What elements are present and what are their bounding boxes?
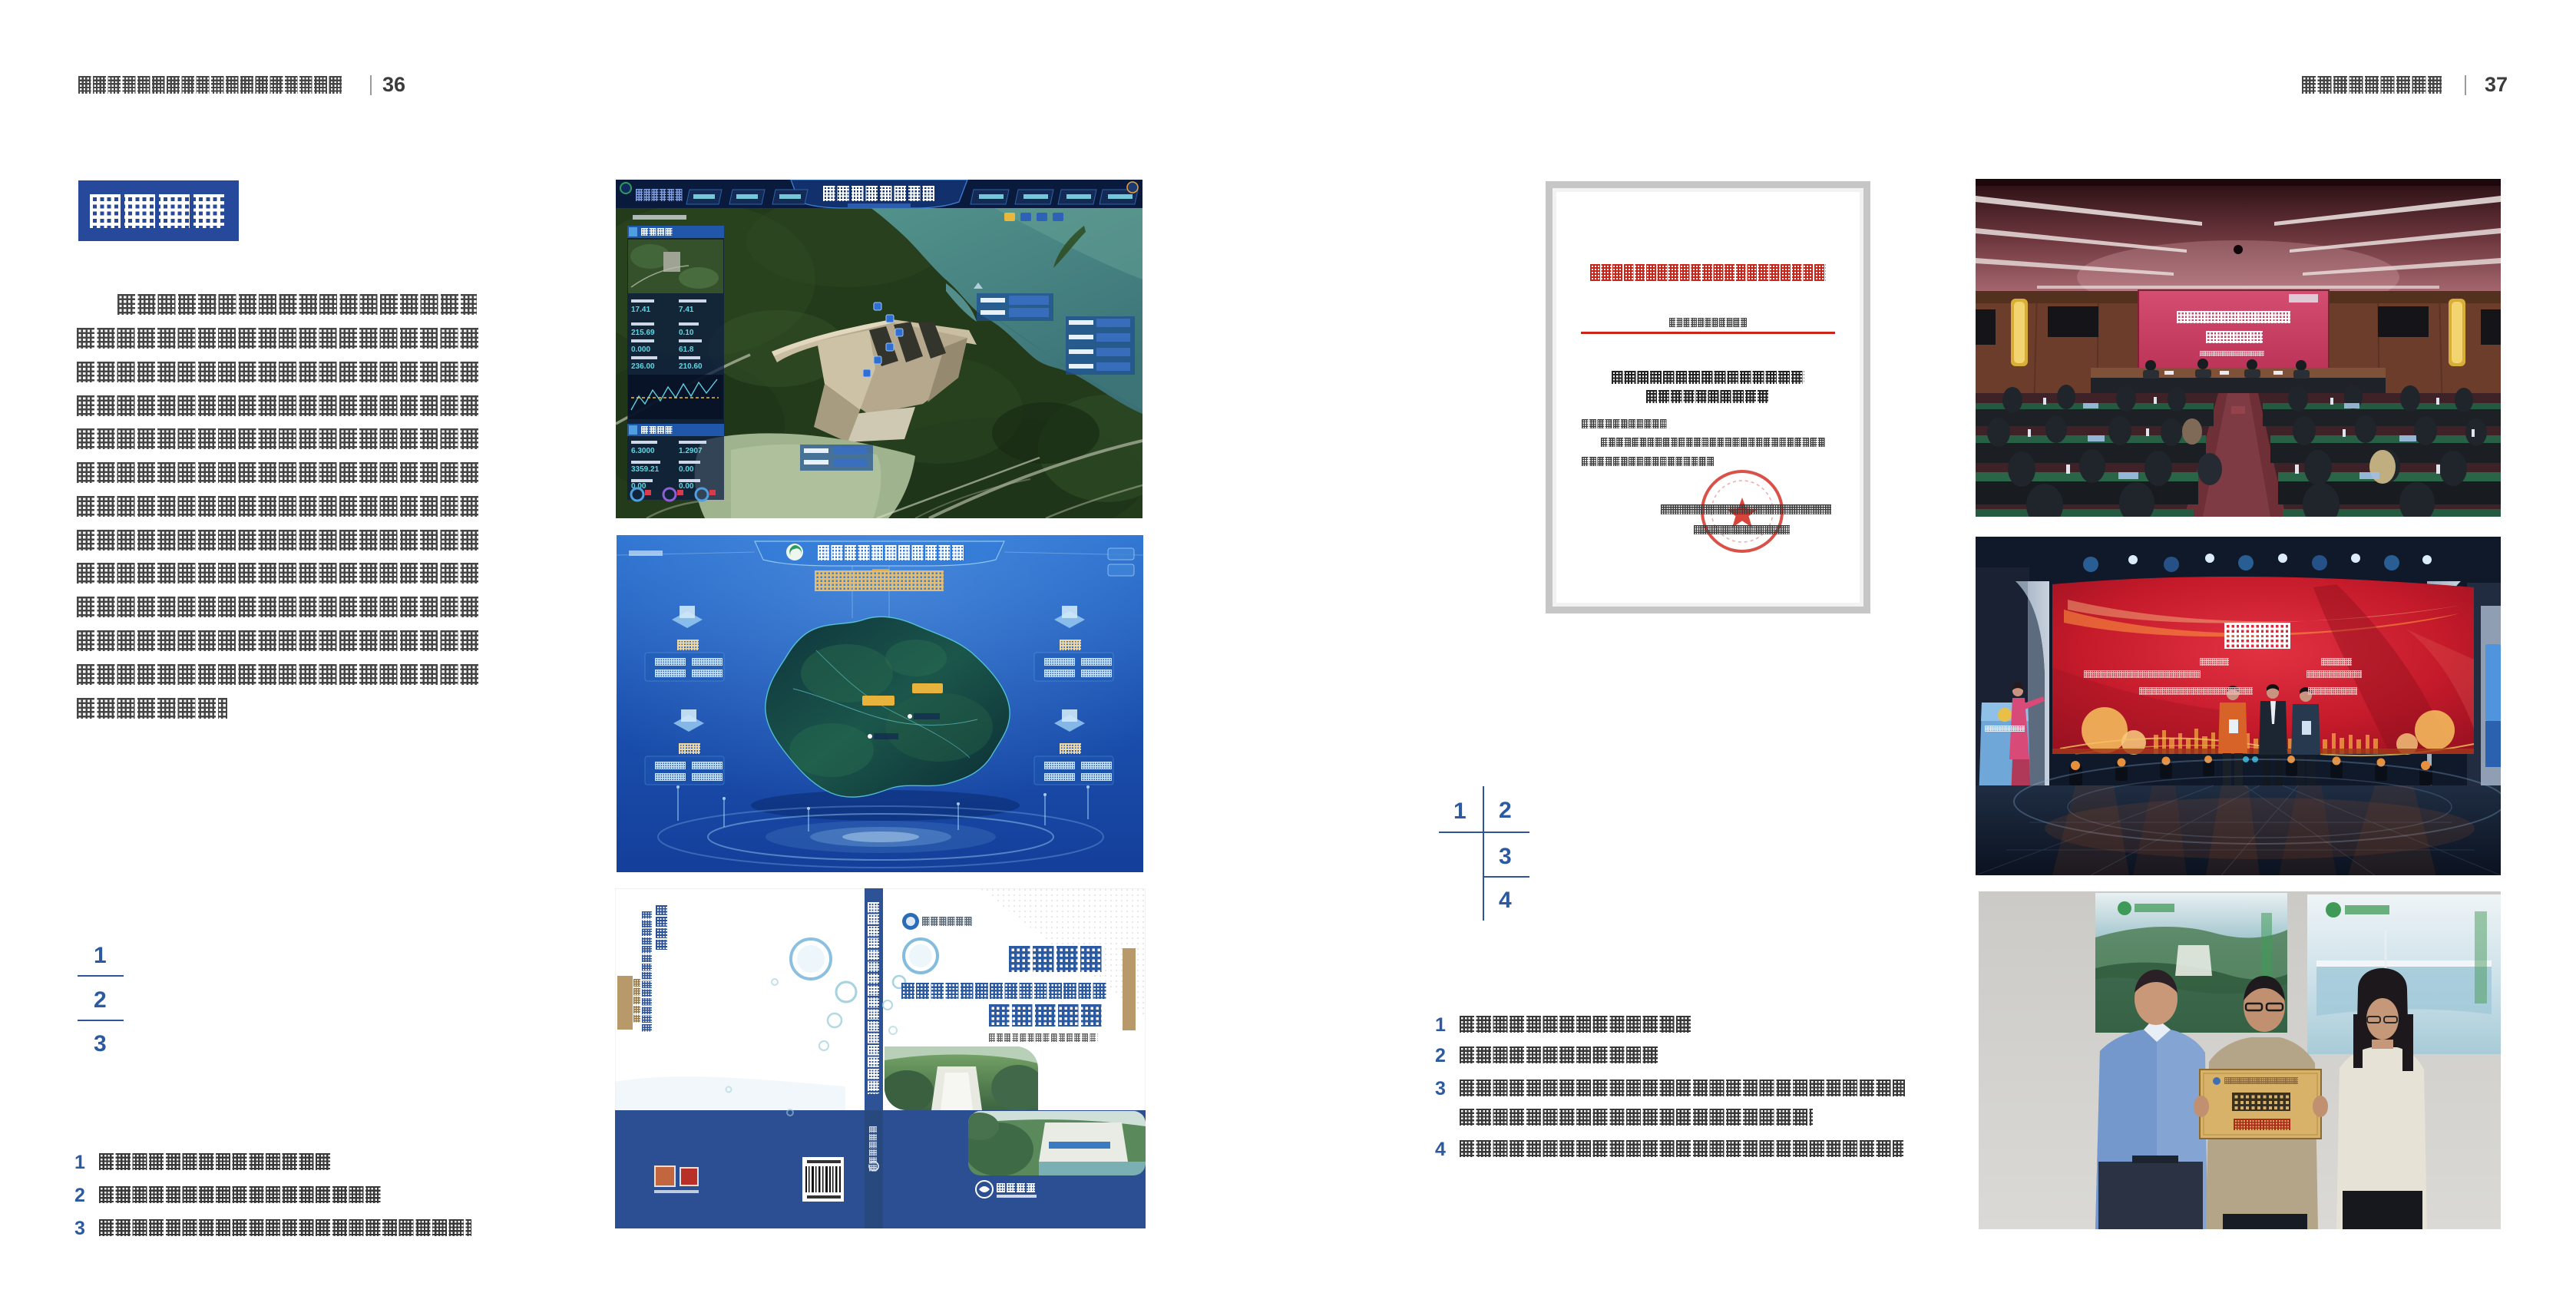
svg-text:17.41: 17.41 — [631, 306, 650, 314]
svg-text:0.00: 0.00 — [679, 482, 694, 491]
svg-text:1.2907: 1.2907 — [679, 447, 703, 455]
svg-text:215.69: 215.69 — [631, 329, 655, 337]
svg-text:0.000: 0.000 — [631, 346, 650, 354]
svg-text:0.10: 0.10 — [679, 329, 694, 337]
svg-text:6.3000: 6.3000 — [631, 447, 655, 455]
svg-text:210.60: 210.60 — [679, 362, 703, 371]
svg-text:236.00: 236.00 — [631, 362, 655, 371]
svg-text:0.00: 0.00 — [679, 465, 694, 474]
svg-text:61.8: 61.8 — [679, 346, 694, 354]
svg-text:7.41: 7.41 — [679, 306, 694, 314]
svg-text:3359.21: 3359.21 — [631, 465, 660, 474]
